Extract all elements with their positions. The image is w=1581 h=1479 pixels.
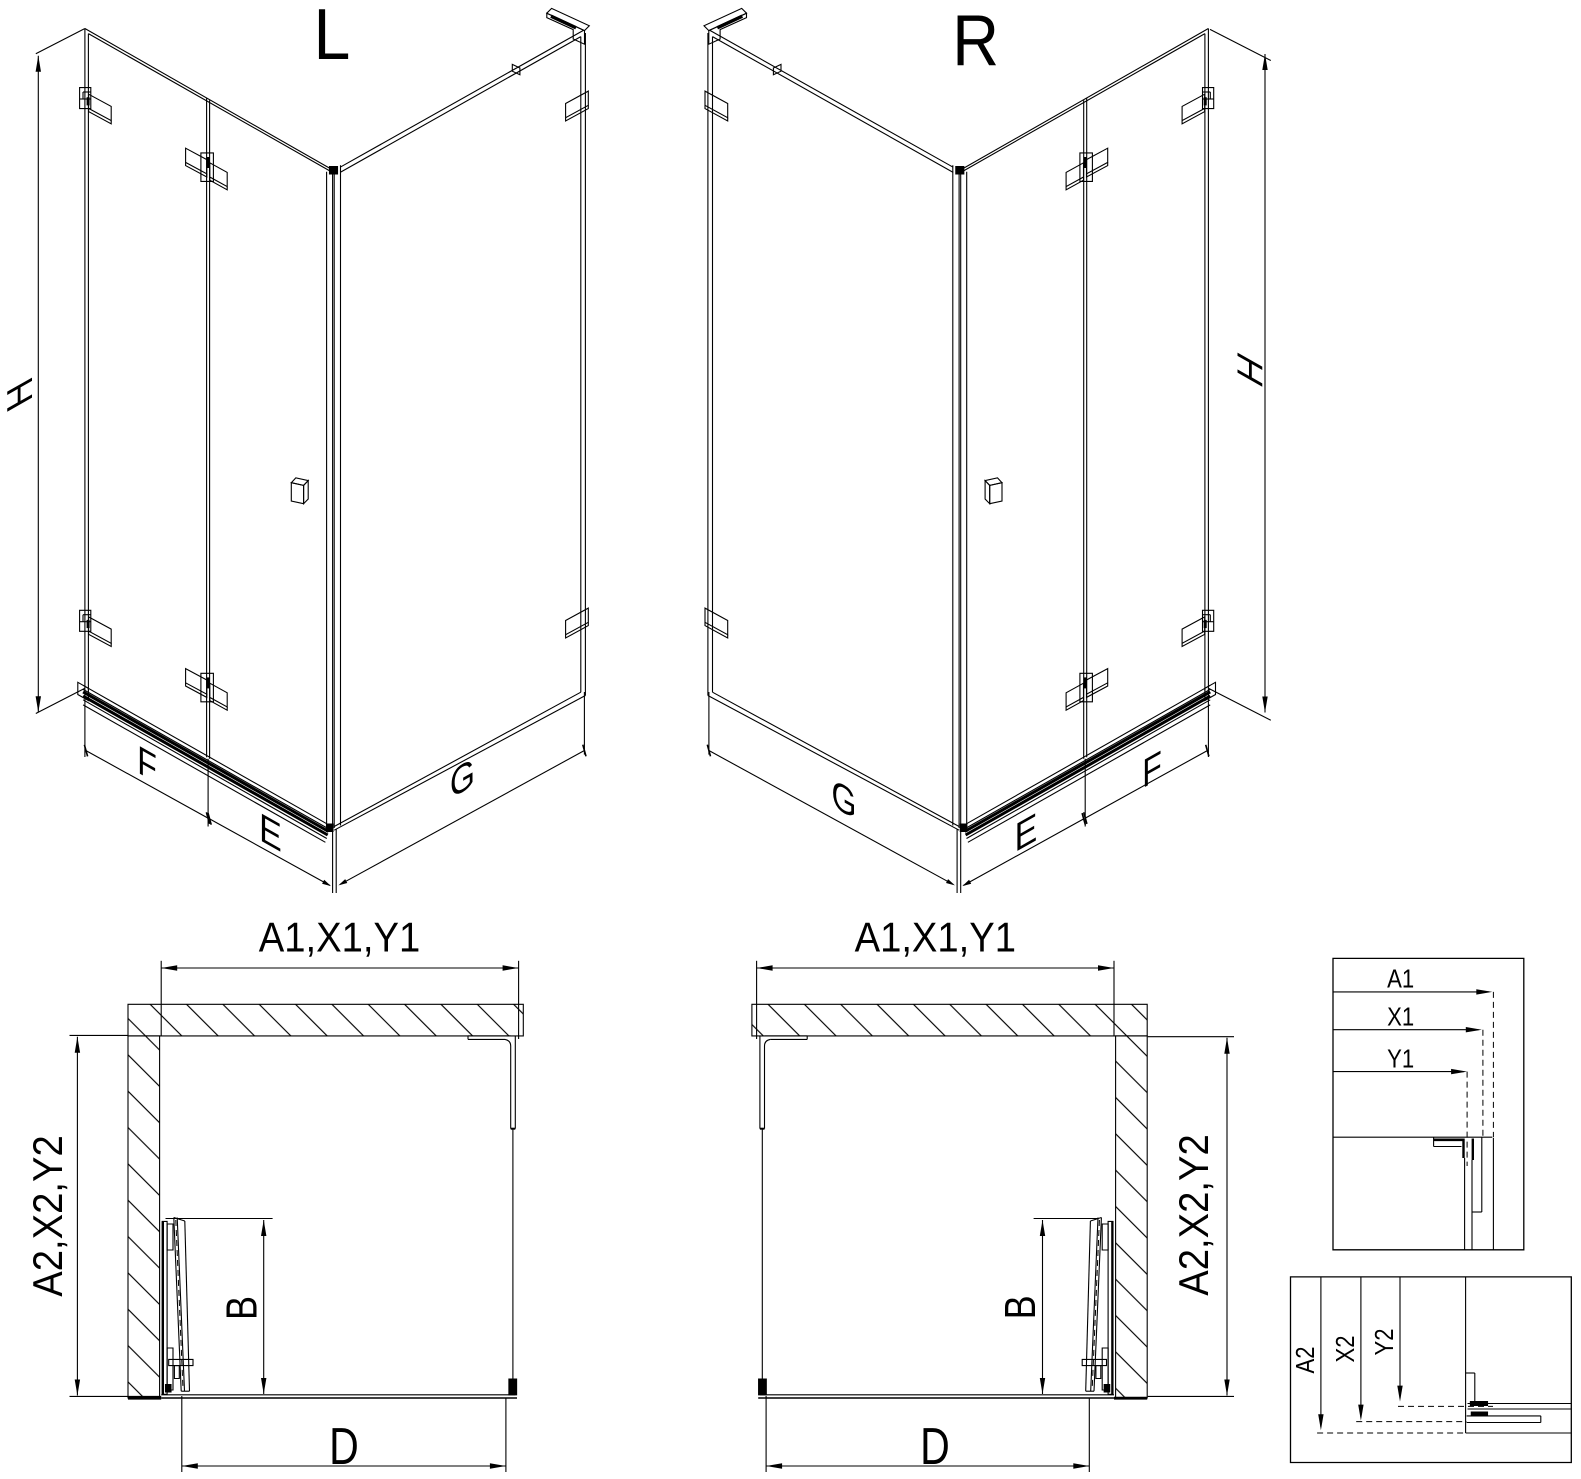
svg-text:A1,X1,Y1: A1,X1,Y1 (259, 914, 420, 961)
svg-text:B: B (217, 1296, 266, 1320)
svg-text:X2: X2 (1331, 1335, 1360, 1362)
svg-text:X1: X1 (1387, 1003, 1414, 1032)
svg-text:Y2: Y2 (1370, 1328, 1399, 1355)
svg-text:B: B (996, 1295, 1045, 1319)
svg-text:R: R (952, 0, 999, 81)
svg-text:L: L (314, 0, 351, 74)
svg-text:A2,X2,Y2: A2,X2,Y2 (1170, 1134, 1217, 1295)
svg-text:A2,X2,Y2: A2,X2,Y2 (24, 1135, 71, 1296)
svg-text:A1,X1,Y1: A1,X1,Y1 (855, 914, 1016, 961)
svg-text:A2: A2 (1291, 1346, 1320, 1373)
svg-text:D: D (329, 1417, 359, 1475)
svg-text:Y1: Y1 (1387, 1045, 1414, 1074)
svg-text:D: D (920, 1417, 950, 1475)
svg-text:A1: A1 (1387, 965, 1414, 994)
